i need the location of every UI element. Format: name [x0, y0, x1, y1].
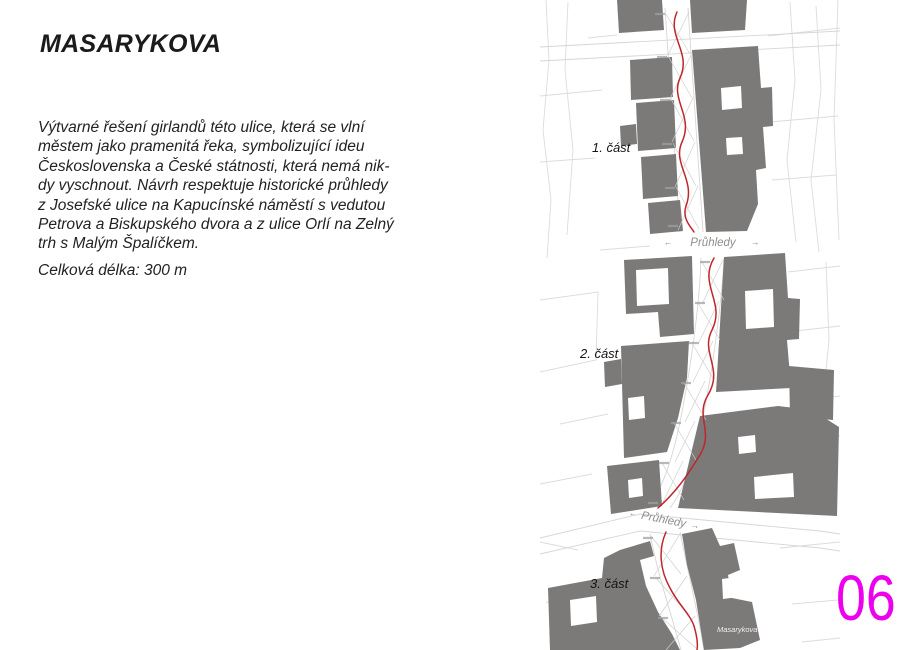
route-line-1 [674, 12, 694, 232]
section-2-label: 2. část [579, 346, 620, 361]
map-panel: 1. část 2. část 3. část ← Průhledy → ← P… [540, 0, 840, 650]
section-1-label: 1. část [592, 140, 632, 155]
section-3-label: 3. část [590, 576, 630, 591]
page-title: MASARYKOVA [40, 30, 221, 59]
total-length-note: Celková délka: 300 m [38, 262, 187, 280]
right-arrow-icon: → [751, 237, 760, 247]
viewline-label-2: ← Průhledy → [628, 507, 701, 533]
description-paragraph: Výtvarné řešení girlandů této ulice, kte… [38, 118, 468, 254]
left-arrow-icon: ← [664, 237, 673, 247]
viewline-label-text: Průhledy [640, 510, 688, 531]
page-number: 06 [836, 568, 896, 629]
right-arrow-icon: → [690, 519, 701, 531]
viewline-label-1: ← Průhledy → [664, 237, 760, 249]
viewline-label-text: Průhledy [690, 237, 737, 249]
site-plan-svg: 1. část 2. část 3. část ← Průhledy → ← P… [540, 0, 840, 650]
left-arrow-icon: ← [628, 507, 639, 519]
street-name-label: Masarykova [717, 625, 757, 634]
